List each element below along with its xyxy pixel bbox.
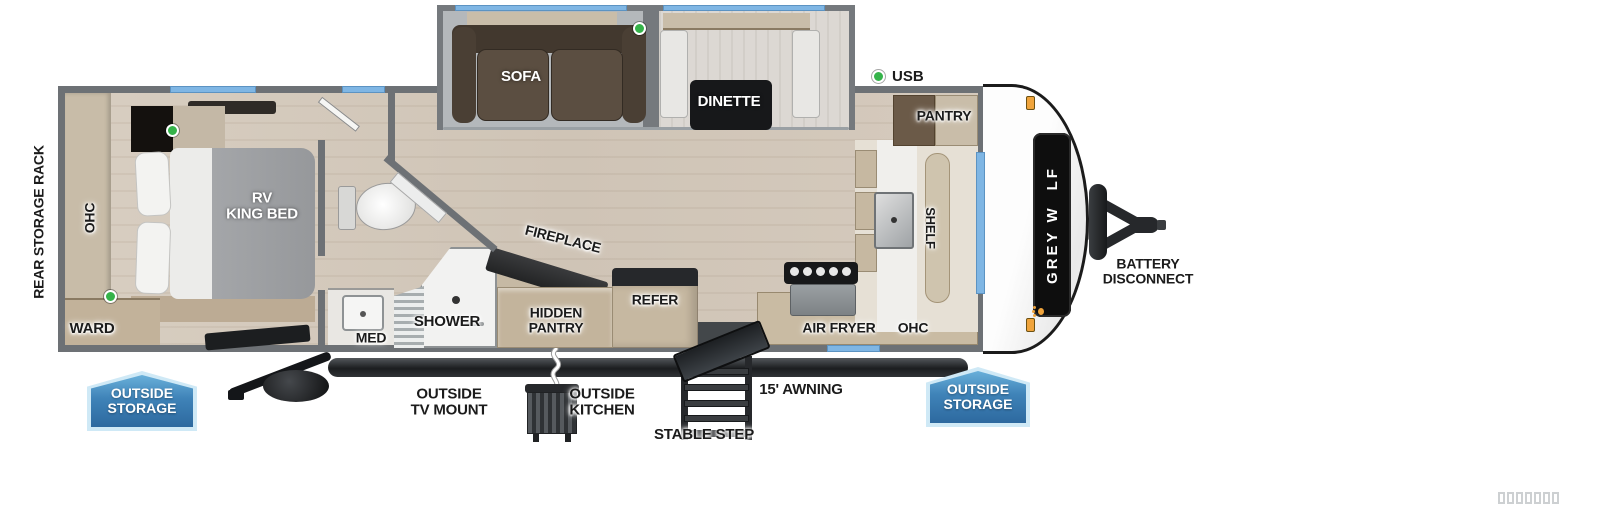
window-front-wall bbox=[976, 152, 985, 294]
battery-disconnect-label: BATTERY DISCONNECT bbox=[1103, 256, 1194, 285]
led-indicator bbox=[104, 290, 117, 303]
pillow bbox=[134, 151, 171, 217]
glyph-box bbox=[1498, 492, 1505, 504]
bedroom-wall bbox=[318, 140, 325, 256]
glyph-box bbox=[1543, 492, 1550, 504]
brand-prefix: GREY W bbox=[1044, 205, 1061, 284]
window-slideout-1 bbox=[455, 5, 627, 11]
window-door-side bbox=[827, 345, 880, 352]
dinette-bench bbox=[792, 30, 820, 118]
window-slideout-2 bbox=[663, 5, 825, 11]
glyph-box bbox=[1552, 492, 1559, 504]
kitchen-cabinet bbox=[855, 150, 877, 188]
slideout-floor-edge bbox=[443, 127, 849, 130]
led-indicator bbox=[872, 70, 885, 83]
clearance-light bbox=[1026, 96, 1035, 110]
awning-label: 15' AWNING bbox=[759, 382, 843, 398]
bed-mattress bbox=[212, 148, 315, 299]
rv-king-bed-label: RV KING BED bbox=[226, 190, 298, 221]
shelf-label: SHELF bbox=[923, 207, 937, 249]
ward-label: WARD bbox=[69, 321, 114, 337]
usb-label: USB bbox=[892, 68, 924, 85]
step-rung bbox=[684, 400, 749, 407]
awning-tube bbox=[328, 358, 968, 377]
window-bedroom-top-1 bbox=[170, 86, 256, 93]
outside-storage-label: OUTSIDE STORAGE bbox=[944, 382, 1013, 413]
step-rung bbox=[684, 384, 749, 391]
brand-badge: GREY WLF bbox=[1033, 133, 1071, 317]
grill-leg bbox=[533, 434, 539, 442]
bedroom-ohc-cabinet bbox=[65, 93, 111, 308]
burner bbox=[790, 267, 799, 276]
sofa-cushion bbox=[551, 49, 623, 121]
med-sink-drain bbox=[360, 311, 366, 317]
sofa-label: SOFA bbox=[501, 69, 541, 85]
shower-label: SHOWER bbox=[414, 314, 480, 330]
dinette-label: DINETTE bbox=[698, 94, 761, 110]
glyph-box bbox=[1507, 492, 1514, 504]
led-indicator bbox=[633, 22, 646, 35]
glyph-box bbox=[1525, 492, 1532, 504]
burner bbox=[803, 267, 812, 276]
tv-mount-base bbox=[263, 370, 329, 402]
clearance-light bbox=[1026, 318, 1035, 332]
outside-storage-badge-left: OUTSIDE STORAGE bbox=[87, 371, 197, 431]
rear-storage-rack-label: REAR STORAGE RACK bbox=[32, 145, 47, 298]
kitchen-sink-drain bbox=[891, 217, 897, 223]
usb-indicator-row: USB bbox=[872, 68, 924, 85]
window-bedroom-top-2 bbox=[342, 86, 385, 93]
hitch-coupler-tip bbox=[1157, 220, 1166, 230]
outside-tv-mount-label: OUTSIDE TV MOUNT bbox=[411, 386, 488, 417]
bedroom-wall bbox=[318, 290, 325, 345]
glyph-box bbox=[1516, 492, 1523, 504]
tongue-jack bbox=[1089, 184, 1107, 260]
sofa-arm bbox=[622, 27, 646, 123]
burner bbox=[842, 267, 851, 276]
outside-kitchen-label: OUTSIDE KITCHEN bbox=[569, 386, 634, 417]
tv-mount-foot bbox=[228, 390, 244, 400]
burner bbox=[816, 267, 825, 276]
air-fryer-range bbox=[790, 284, 856, 316]
brand-suffix: LF bbox=[1044, 166, 1061, 190]
grill-leg bbox=[565, 434, 571, 442]
refer-label: REFER bbox=[632, 293, 678, 308]
outside-storage-label: OUTSIDE STORAGE bbox=[108, 386, 177, 417]
air-fryer-label: AIR FRYER bbox=[802, 321, 875, 336]
slideout-room bbox=[437, 5, 855, 130]
pantry-label: PANTRY bbox=[917, 109, 972, 124]
rv-floorplan: GREY WLF OUTSIDE STORAGE OUTSIDE STORAGE bbox=[0, 0, 1600, 525]
slideout-overhead-cabinet bbox=[663, 13, 810, 30]
brand-text: GREY WLF bbox=[1033, 133, 1071, 317]
hidden-pantry-label: HIDDEN PANTRY bbox=[529, 305, 584, 334]
sofa-arm bbox=[452, 27, 476, 123]
bed-head-shelf bbox=[173, 106, 225, 152]
pillow bbox=[135, 221, 171, 294]
burner bbox=[829, 267, 838, 276]
glyph-box bbox=[1534, 492, 1541, 504]
bed-sheet bbox=[170, 148, 214, 299]
shower-drain bbox=[452, 296, 460, 304]
bath-wall bbox=[388, 93, 395, 161]
bedroom-ohc-label: OHC bbox=[83, 203, 98, 234]
toilet-tank bbox=[338, 186, 356, 230]
stable-step-label: STABLE STEP bbox=[654, 427, 754, 443]
refrigerator-top bbox=[612, 268, 698, 286]
med-label: MED bbox=[356, 331, 387, 346]
kitchen-ohc-label: OHC bbox=[898, 321, 929, 336]
paw-icon bbox=[1047, 192, 1058, 203]
hitch-coupler bbox=[1133, 217, 1159, 233]
led-indicator bbox=[166, 124, 179, 137]
glyph-watermark bbox=[1498, 491, 1561, 509]
dinette-bench bbox=[660, 30, 688, 118]
step-rung bbox=[684, 415, 749, 422]
